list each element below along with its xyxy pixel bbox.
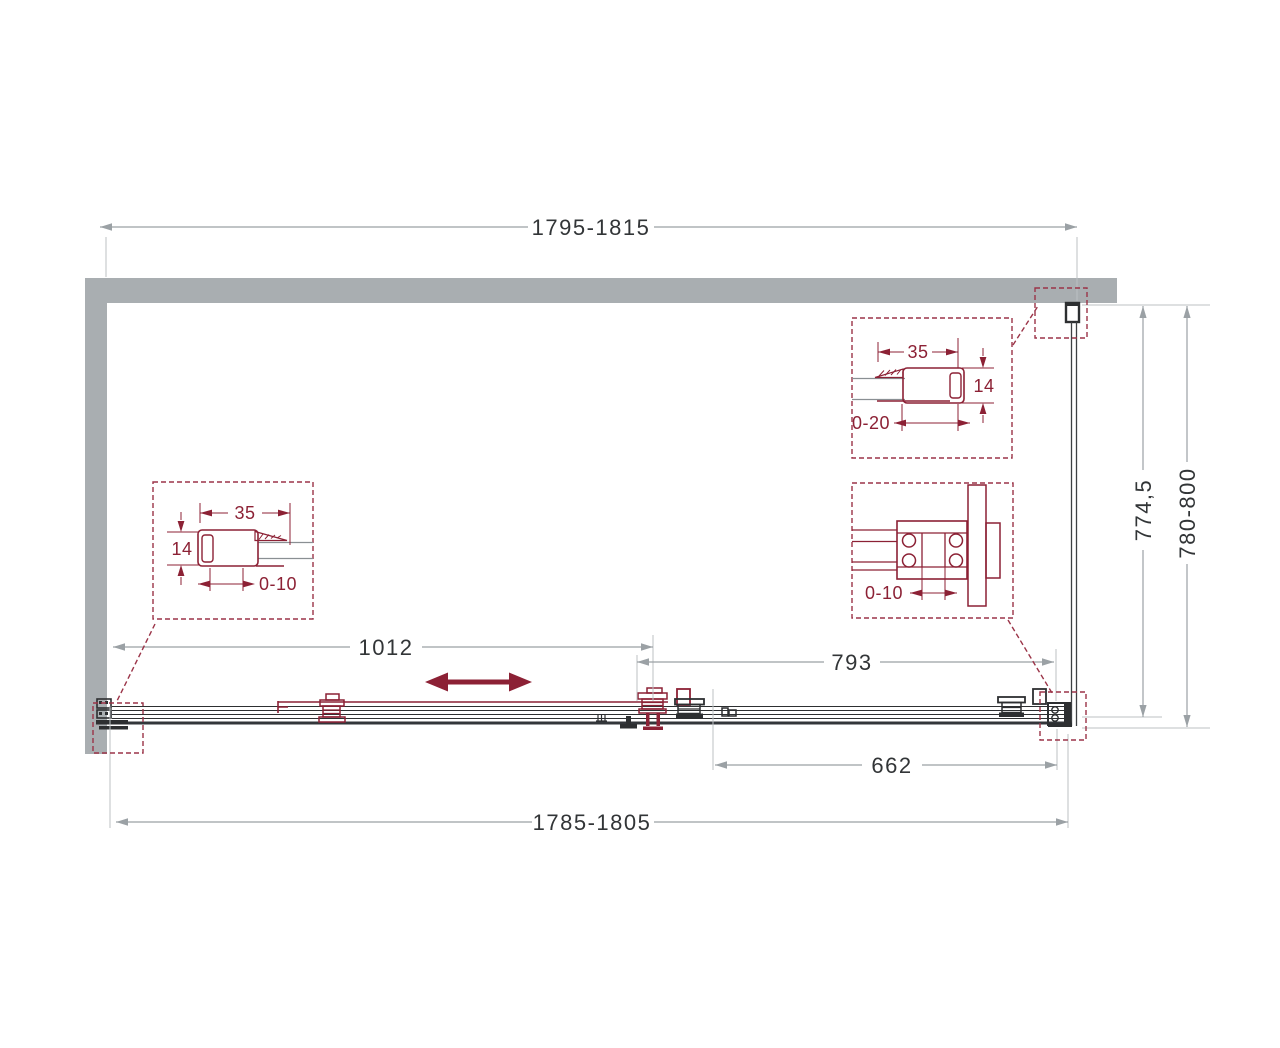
dim-label-opening: 662 <box>871 753 912 778</box>
glass-lines <box>852 379 905 400</box>
adjuster-comb <box>596 714 607 721</box>
arrowhead <box>1183 715 1190 727</box>
roller-flange <box>999 713 1024 718</box>
corner-bracket-edge <box>1064 704 1071 724</box>
shower-enclosure-plan: 1795-1815 1785-1805 1012 793 662 774,5 <box>0 0 1280 1048</box>
dim-fixed-panel-width: 793 <box>637 649 1056 701</box>
arrowhead <box>637 658 649 666</box>
dim-label-depth: 774,5 <box>1131 479 1156 542</box>
bracket-foot <box>96 720 128 725</box>
arrowhead <box>945 590 957 597</box>
bracket-screw <box>99 712 102 715</box>
track <box>108 701 1072 723</box>
arrowhead <box>715 761 727 769</box>
arrowhead <box>1139 306 1146 318</box>
dim-label-top: 1795-1815 <box>532 215 651 240</box>
arrowhead <box>178 565 185 576</box>
bracket-screw <box>105 712 108 715</box>
detail-label-adjustment: 0-10 <box>865 583 903 603</box>
arrow-shaft <box>446 680 510 685</box>
arrowhead <box>243 581 255 588</box>
roller-body-lines <box>642 703 663 706</box>
arrowhead <box>980 357 987 368</box>
guide-block <box>677 689 690 705</box>
arrow-head-left <box>425 673 448 692</box>
profile-teeth-hatch <box>259 534 281 540</box>
arrowhead <box>878 349 890 356</box>
arrowhead <box>980 403 987 414</box>
door-roller-left <box>319 694 345 722</box>
rail-lines <box>852 530 897 570</box>
arrowhead <box>1042 658 1054 666</box>
arrowhead <box>113 643 125 651</box>
callout-bottom-right <box>1040 692 1086 740</box>
roller-flange <box>319 717 345 722</box>
arrowhead <box>946 349 958 356</box>
arrowhead <box>1065 223 1077 231</box>
arrowhead <box>958 420 970 427</box>
clamp-block <box>986 523 1000 578</box>
profile-slot <box>202 535 213 562</box>
roller-wheel <box>903 554 916 567</box>
dim-door-width: 1012 <box>113 635 653 701</box>
dim-label-door: 1012 <box>359 635 414 660</box>
technical-drawing-canvas: 1795-1815 1785-1805 1012 793 662 774,5 <box>0 0 1280 1048</box>
detail-label-thickness: 14 <box>171 539 192 559</box>
detail-label-thickness: 14 <box>973 376 994 396</box>
wall-profile-cap-top <box>1066 302 1079 306</box>
wall-top <box>85 278 1117 303</box>
arrowhead <box>894 420 906 427</box>
stopper-stem <box>626 716 631 724</box>
arrowhead <box>278 510 290 517</box>
roller-plate <box>320 700 344 706</box>
roller-foot <box>653 727 663 731</box>
roller-leg <box>657 713 661 726</box>
dim-bottom-width: 1785-1805 <box>110 706 1068 835</box>
arrowhead <box>641 643 653 651</box>
stopper-base <box>620 724 637 729</box>
detail-label-adjustment: 0-20 <box>852 413 890 433</box>
wall-left <box>85 278 107 754</box>
arrowhead <box>116 818 128 826</box>
leader-bottom-right <box>1008 620 1052 693</box>
track-rails <box>112 707 1070 719</box>
detail-wall-profile-left: 35 14 0-10 <box>153 482 313 619</box>
corner-bracket-base <box>1048 723 1072 727</box>
arrowhead <box>1045 761 1057 769</box>
detail-label-adjustment: 0-10 <box>259 574 297 594</box>
glass-pane-lines <box>1072 322 1077 726</box>
dim-label-bottom: 1785-1805 <box>533 810 652 835</box>
arrowhead <box>198 581 210 588</box>
glass-lines <box>258 543 313 559</box>
tick <box>902 404 958 431</box>
arrowhead <box>1183 306 1190 318</box>
arrow-head-right <box>509 673 532 692</box>
dim-label-panel: 793 <box>831 650 872 675</box>
roller-body-lines <box>323 710 340 714</box>
roller-wheel <box>903 534 916 547</box>
profile-teeth <box>875 369 903 378</box>
tick <box>922 567 945 600</box>
carriage-frame <box>897 521 967 579</box>
glass-panel-bar <box>968 485 986 606</box>
bracket-foot-lower <box>99 726 128 730</box>
fixed-panel-roller-right <box>998 689 1046 717</box>
leader-top-right <box>1013 306 1038 345</box>
arrowhead <box>910 590 922 597</box>
detail-label-width: 35 <box>907 342 928 362</box>
detail-label-width: 35 <box>234 503 255 523</box>
roller-cap <box>326 694 339 700</box>
dim-label-depth-range: 780-800 <box>1175 467 1200 558</box>
roller-wheel <box>950 554 963 567</box>
slide-direction-arrow <box>425 673 532 692</box>
roller-leg <box>646 713 650 726</box>
arrowhead <box>100 223 112 231</box>
leader-bottom-left <box>117 624 155 701</box>
profile-slot <box>950 373 961 398</box>
tick <box>210 568 243 591</box>
arrowhead <box>178 521 185 532</box>
roller-flange <box>676 714 703 719</box>
carriage-inner-lines <box>897 533 967 567</box>
roller-wheel <box>950 534 963 547</box>
roller-body <box>323 706 340 717</box>
detail-roller-carriage: 0-10 <box>852 483 1013 618</box>
detail-wall-profile-right: 35 14 0-20 <box>852 318 1012 458</box>
roller-foot <box>643 727 653 731</box>
roller-plate <box>998 697 1025 703</box>
arrowhead <box>1139 705 1146 717</box>
glass-side-panel <box>1066 302 1079 726</box>
arrowhead <box>1056 818 1068 826</box>
arrowhead <box>200 510 212 517</box>
